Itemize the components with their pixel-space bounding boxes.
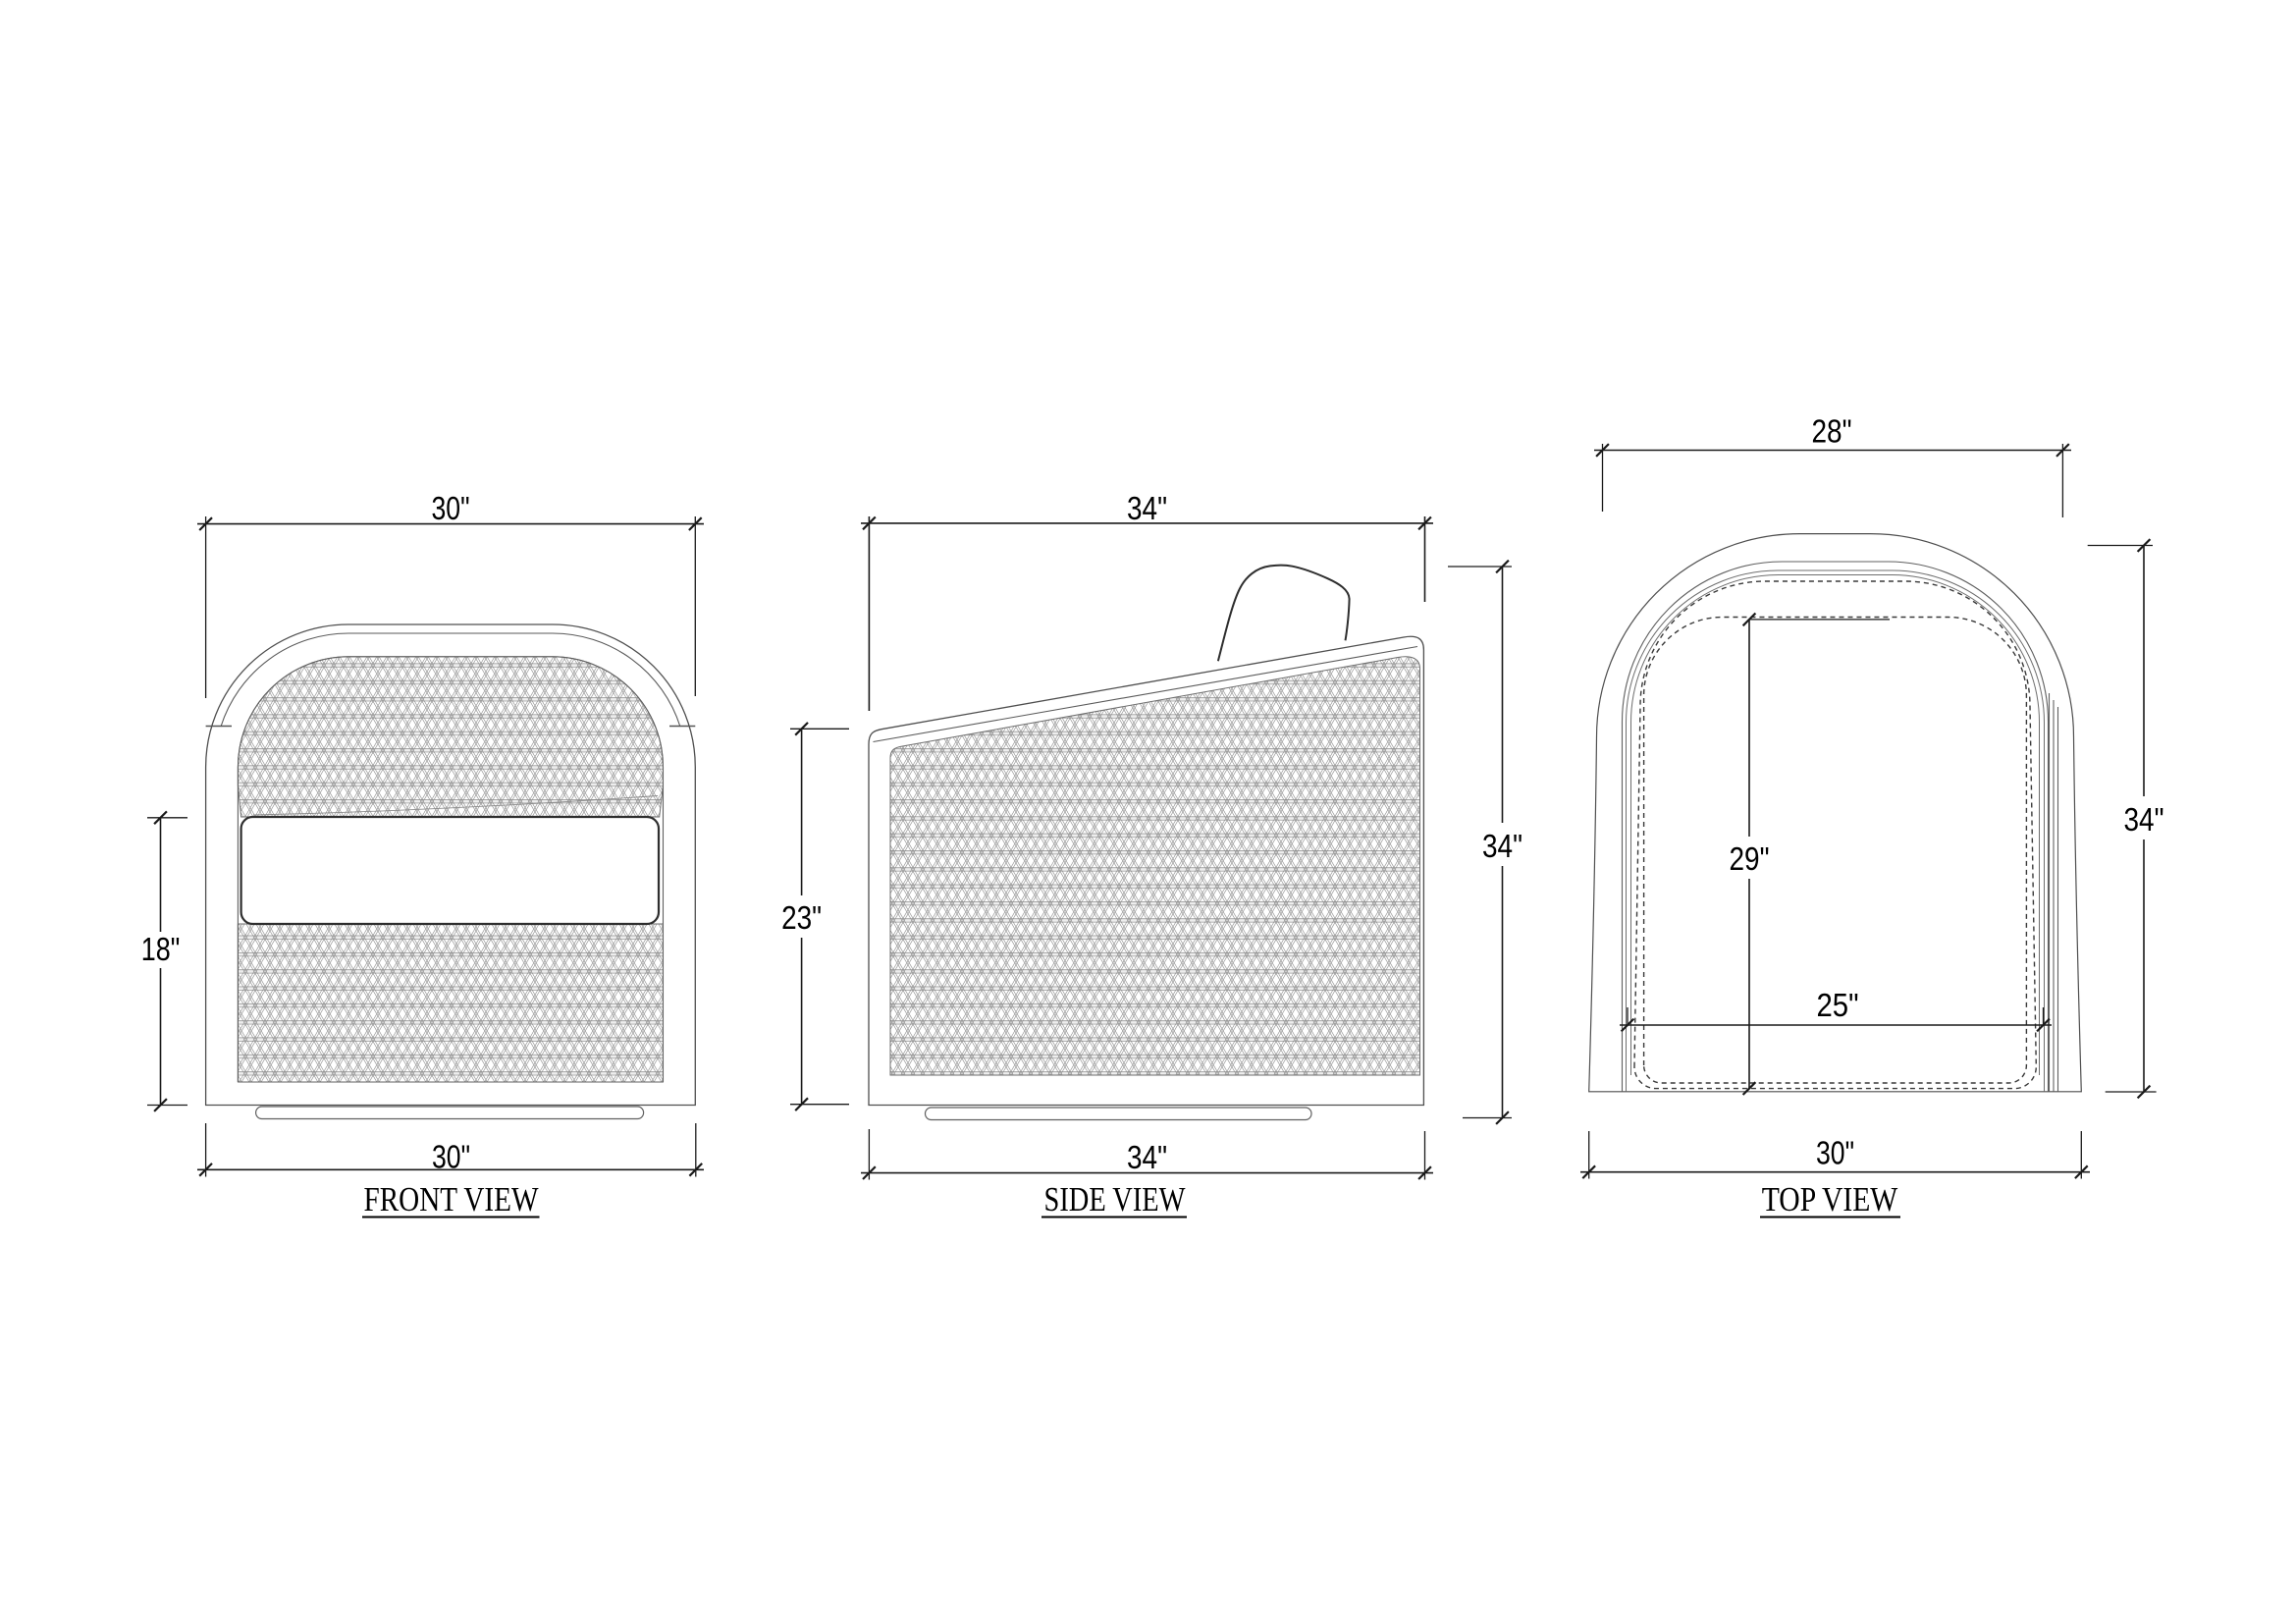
svg-text:23": 23" (781, 899, 822, 936)
svg-text:28": 28" (1812, 413, 1852, 450)
svg-text:34": 34" (1127, 1139, 1167, 1175)
svg-text:34": 34" (2124, 801, 2164, 838)
svg-text:FRONT VIEW: FRONT VIEW (364, 1180, 539, 1218)
svg-text:34": 34" (1482, 828, 1522, 864)
svg-text:18": 18" (141, 931, 181, 967)
svg-text:SIDE VIEW: SIDE VIEW (1044, 1180, 1186, 1218)
svg-text:30": 30" (432, 1139, 470, 1175)
svg-text:30": 30" (432, 490, 470, 526)
svg-text:25": 25" (1817, 987, 1859, 1023)
svg-text:30": 30" (1816, 1135, 1854, 1171)
svg-text:34": 34" (1127, 490, 1167, 526)
svg-text:TOP VIEW: TOP VIEW (1762, 1180, 1898, 1218)
svg-text:29": 29" (1730, 840, 1770, 877)
